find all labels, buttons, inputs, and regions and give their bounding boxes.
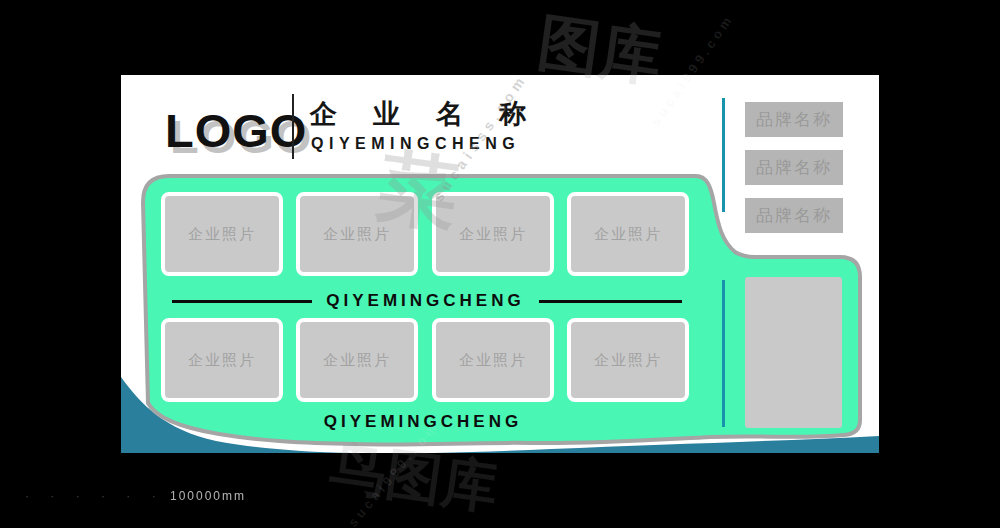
photo-placeholder[interactable]: 企业照片 [161,192,283,276]
company-name: 企业名称 [310,96,562,132]
poster-canvas: LOGO 企业名称 QIYEMINGCHENG 企业照片 企业照片 企业照片 企… [0,0,1000,528]
company-name-pinyin: QIYEMINGCHENG [311,135,520,153]
photo-label: 企业照片 [323,351,391,370]
design-card: LOGO 企业名称 QIYEMINGCHENG 企业照片 企业照片 企业照片 企… [121,75,879,453]
large-photo-placeholder[interactable] [745,277,842,428]
middle-divider-text: QIYEMINGCHENG [326,291,524,311]
brand-name-label: 品牌名称 [756,108,832,131]
photo-label: 企业照片 [188,351,256,370]
footer-note: · · · · · · 100000mm [25,489,246,503]
brand-name-label: 品牌名称 [756,204,832,227]
photo-placeholder[interactable]: 企业照片 [567,318,689,402]
accent-line-top [722,98,725,212]
photo-label: 企业照片 [594,351,662,370]
photo-placeholder[interactable]: 企业照片 [432,318,554,402]
photo-label: 企业照片 [459,225,527,244]
photo-placeholder[interactable]: 企业照片 [567,192,689,276]
photo-placeholder[interactable]: 企业照片 [161,318,283,402]
logo-divider-line [292,94,294,159]
photo-placeholder[interactable]: 企业照片 [296,192,418,276]
photo-placeholder[interactable]: 企业照片 [432,192,554,276]
photo-label: 企业照片 [323,225,391,244]
photo-label: 企业照片 [459,351,527,370]
brand-name-button[interactable]: 品牌名称 [745,102,843,137]
footer-note-size: 100000mm [170,489,246,503]
bottom-slogan: QIYEMINGCHENG [298,412,548,432]
accent-line-bottom [722,280,725,427]
divider-line-left [172,300,312,303]
photo-placeholder[interactable]: 企业照片 [296,318,418,402]
footer-note-lead: · · · · · · [25,489,165,503]
divider-line-right [539,300,682,303]
middle-divider: QIYEMINGCHENG [151,291,703,311]
brand-name-button[interactable]: 品牌名称 [745,198,843,233]
logo-text: LOGO [165,103,307,158]
brand-name-label: 品牌名称 [756,156,832,179]
photo-label: 企业照片 [594,225,662,244]
brand-name-button[interactable]: 品牌名称 [745,150,843,185]
photo-label: 企业照片 [188,225,256,244]
